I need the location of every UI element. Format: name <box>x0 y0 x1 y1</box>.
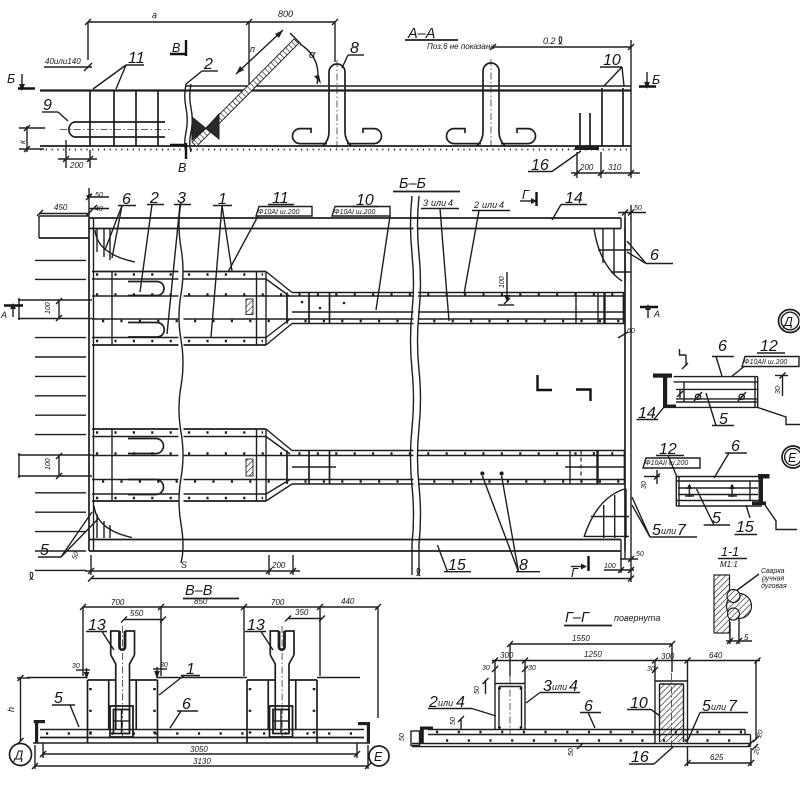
svg-text:п: п <box>250 44 255 54</box>
svg-text:625: 625 <box>710 753 724 762</box>
svg-text:h: h <box>6 707 16 712</box>
svg-text:повернута: повернута <box>614 613 660 623</box>
svg-text:100: 100 <box>499 276 506 288</box>
svg-text:дуговая: дуговая <box>761 582 787 590</box>
svg-text:310: 310 <box>608 163 622 172</box>
svg-text:350: 350 <box>295 608 309 617</box>
svg-text:850: 850 <box>194 597 208 606</box>
svg-text:50: 50 <box>450 717 457 725</box>
svg-text:6: 6 <box>718 338 727 355</box>
svg-text:Поз.6 не показана: Поз.6 не показана <box>427 42 495 51</box>
svg-text:или: или <box>482 200 497 210</box>
svg-text:0.2: 0.2 <box>543 36 556 46</box>
svg-text:а: а <box>152 10 157 20</box>
svg-text:Ф10АI ш.200: Ф10АI ш.200 <box>258 209 299 216</box>
svg-text:300: 300 <box>661 652 675 661</box>
svg-text:или: или <box>438 698 453 708</box>
svg-text:40: 40 <box>95 206 103 213</box>
svg-text:М1:1: М1:1 <box>720 560 738 569</box>
svg-text:100: 100 <box>604 563 616 570</box>
svg-text:Б: Б <box>652 73 660 87</box>
svg-text:550: 550 <box>130 609 144 618</box>
svg-text:Д: Д <box>782 315 793 329</box>
svg-text:Г: Г <box>522 188 530 202</box>
svg-text:700: 700 <box>111 598 125 607</box>
svg-text:или: или <box>431 198 446 208</box>
svg-text:800: 800 <box>278 9 293 19</box>
svg-text:1550: 1550 <box>572 634 590 643</box>
svg-text:50: 50 <box>568 748 575 756</box>
svg-text:100: 100 <box>45 302 52 314</box>
svg-text:40или140: 40или140 <box>45 57 81 66</box>
svg-text:300: 300 <box>500 651 514 660</box>
svg-text:А: А <box>653 309 660 319</box>
svg-text:640: 640 <box>709 651 723 660</box>
svg-text:100: 100 <box>45 458 52 470</box>
svg-text:6: 6 <box>650 247 659 264</box>
svg-text:Ф10АI ш.200: Ф10АI ш.200 <box>334 209 375 216</box>
svg-text:Е: Е <box>788 451 797 465</box>
svg-text:50: 50 <box>474 686 481 694</box>
svg-text:4: 4 <box>499 200 504 210</box>
svg-text:4: 4 <box>448 198 453 208</box>
svg-text:или: или <box>711 702 726 712</box>
svg-text:Б–Б: Б–Б <box>399 176 426 192</box>
svg-text:50: 50 <box>636 551 644 558</box>
svg-text:α: α <box>309 49 316 61</box>
svg-text:2: 2 <box>473 200 479 210</box>
svg-text:Г: Г <box>571 566 579 580</box>
svg-text:5: 5 <box>744 633 749 642</box>
svg-text:3130: 3130 <box>193 757 211 766</box>
svg-text:30: 30 <box>775 386 782 394</box>
svg-text:Д: Д <box>13 749 24 763</box>
svg-text:В: В <box>178 161 186 175</box>
svg-text:50: 50 <box>95 192 103 199</box>
svg-text:Г–Г: Г–Г <box>565 610 590 626</box>
svg-text:Е: Е <box>374 750 383 764</box>
svg-text:1-1: 1-1 <box>721 545 739 559</box>
svg-text:30: 30 <box>160 662 168 669</box>
svg-text:450: 450 <box>54 203 68 212</box>
svg-text:Б: Б <box>7 72 15 86</box>
svg-text:S: S <box>181 560 187 570</box>
svg-text:Ф10АII ш.200: Ф10АII ш.200 <box>744 359 787 366</box>
svg-text:Сварка: Сварка <box>761 568 785 575</box>
svg-text:Ф10АII ш.200: Ф10АII ш.200 <box>645 460 688 467</box>
svg-text:15: 15 <box>736 519 754 536</box>
svg-text:200: 200 <box>271 561 286 570</box>
svg-text:440: 440 <box>341 597 355 606</box>
svg-text:3: 3 <box>423 198 428 208</box>
svg-text:или: или <box>552 682 567 692</box>
svg-text:700: 700 <box>271 598 285 607</box>
svg-text:200: 200 <box>579 163 594 172</box>
svg-text:30: 30 <box>641 481 648 489</box>
svg-text:200: 200 <box>69 161 84 170</box>
svg-text:50: 50 <box>399 733 406 741</box>
svg-text:А: А <box>0 310 7 320</box>
svg-text:30: 30 <box>482 665 490 672</box>
svg-text:60: 60 <box>627 328 635 335</box>
svg-text:ручная: ручная <box>761 576 785 583</box>
svg-text:или: или <box>661 526 676 536</box>
svg-text:1250: 1250 <box>584 650 602 659</box>
svg-text:3050: 3050 <box>190 745 208 754</box>
svg-text:30: 30 <box>528 665 536 672</box>
svg-text:50: 50 <box>634 205 642 212</box>
svg-text:30: 30 <box>72 663 80 670</box>
